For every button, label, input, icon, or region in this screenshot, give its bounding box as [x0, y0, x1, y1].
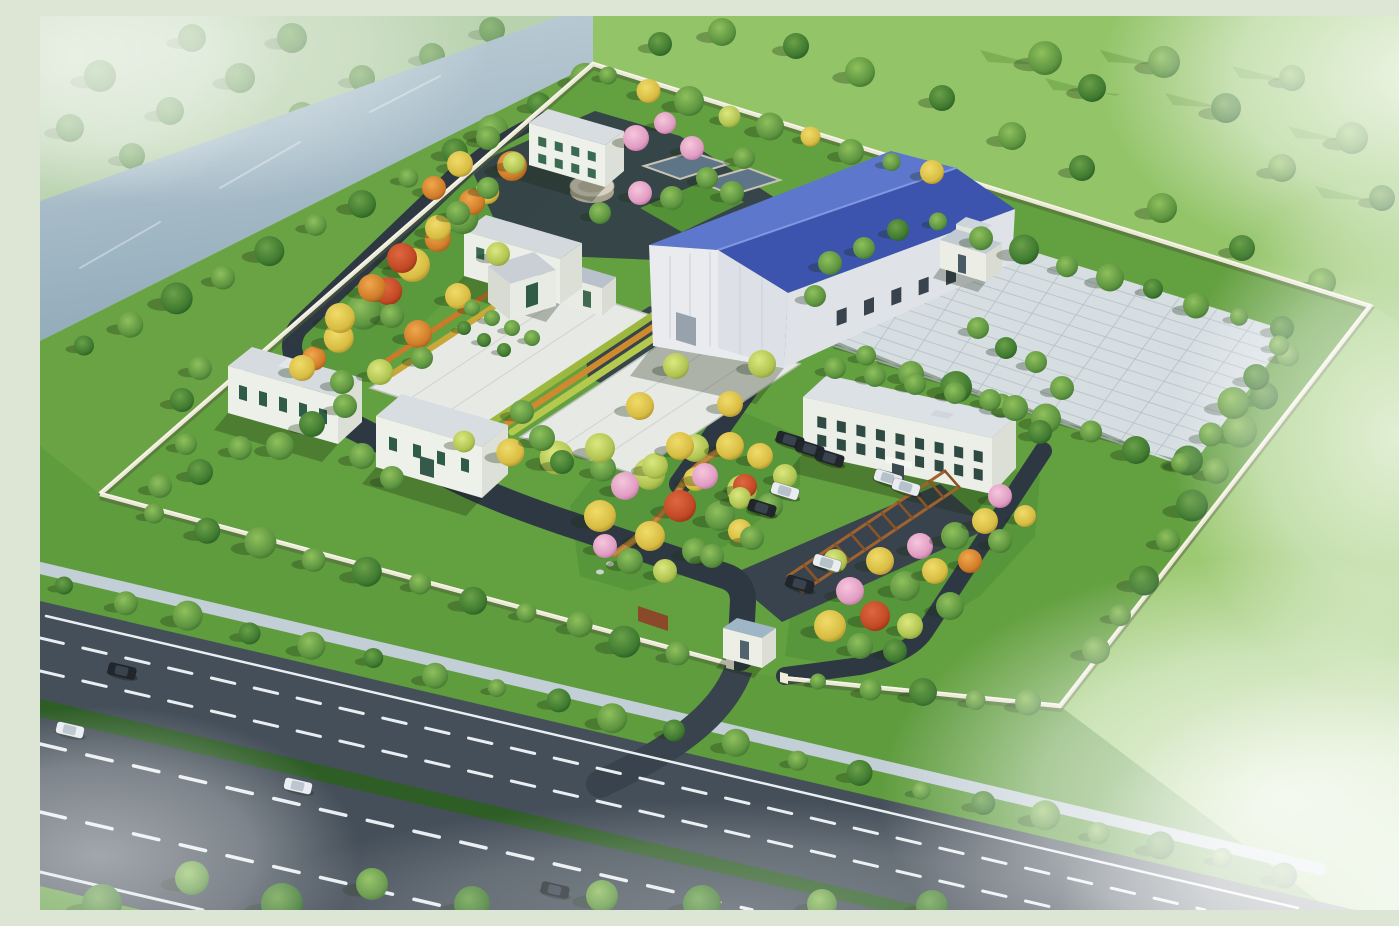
l-bldg-wing-door: [526, 282, 538, 308]
pump-hut-door: [583, 290, 591, 308]
warehouse-door: [676, 312, 696, 346]
gate-pier-right: [780, 672, 788, 684]
scene-layers: [40, 16, 1399, 910]
aerial-site-rendering: [40, 16, 1399, 910]
stepping-stone-1: [596, 570, 604, 575]
site-rendering-canvas: [40, 16, 1399, 910]
plaza-hut-door: [958, 254, 966, 274]
gatehouse-door: [740, 640, 749, 660]
